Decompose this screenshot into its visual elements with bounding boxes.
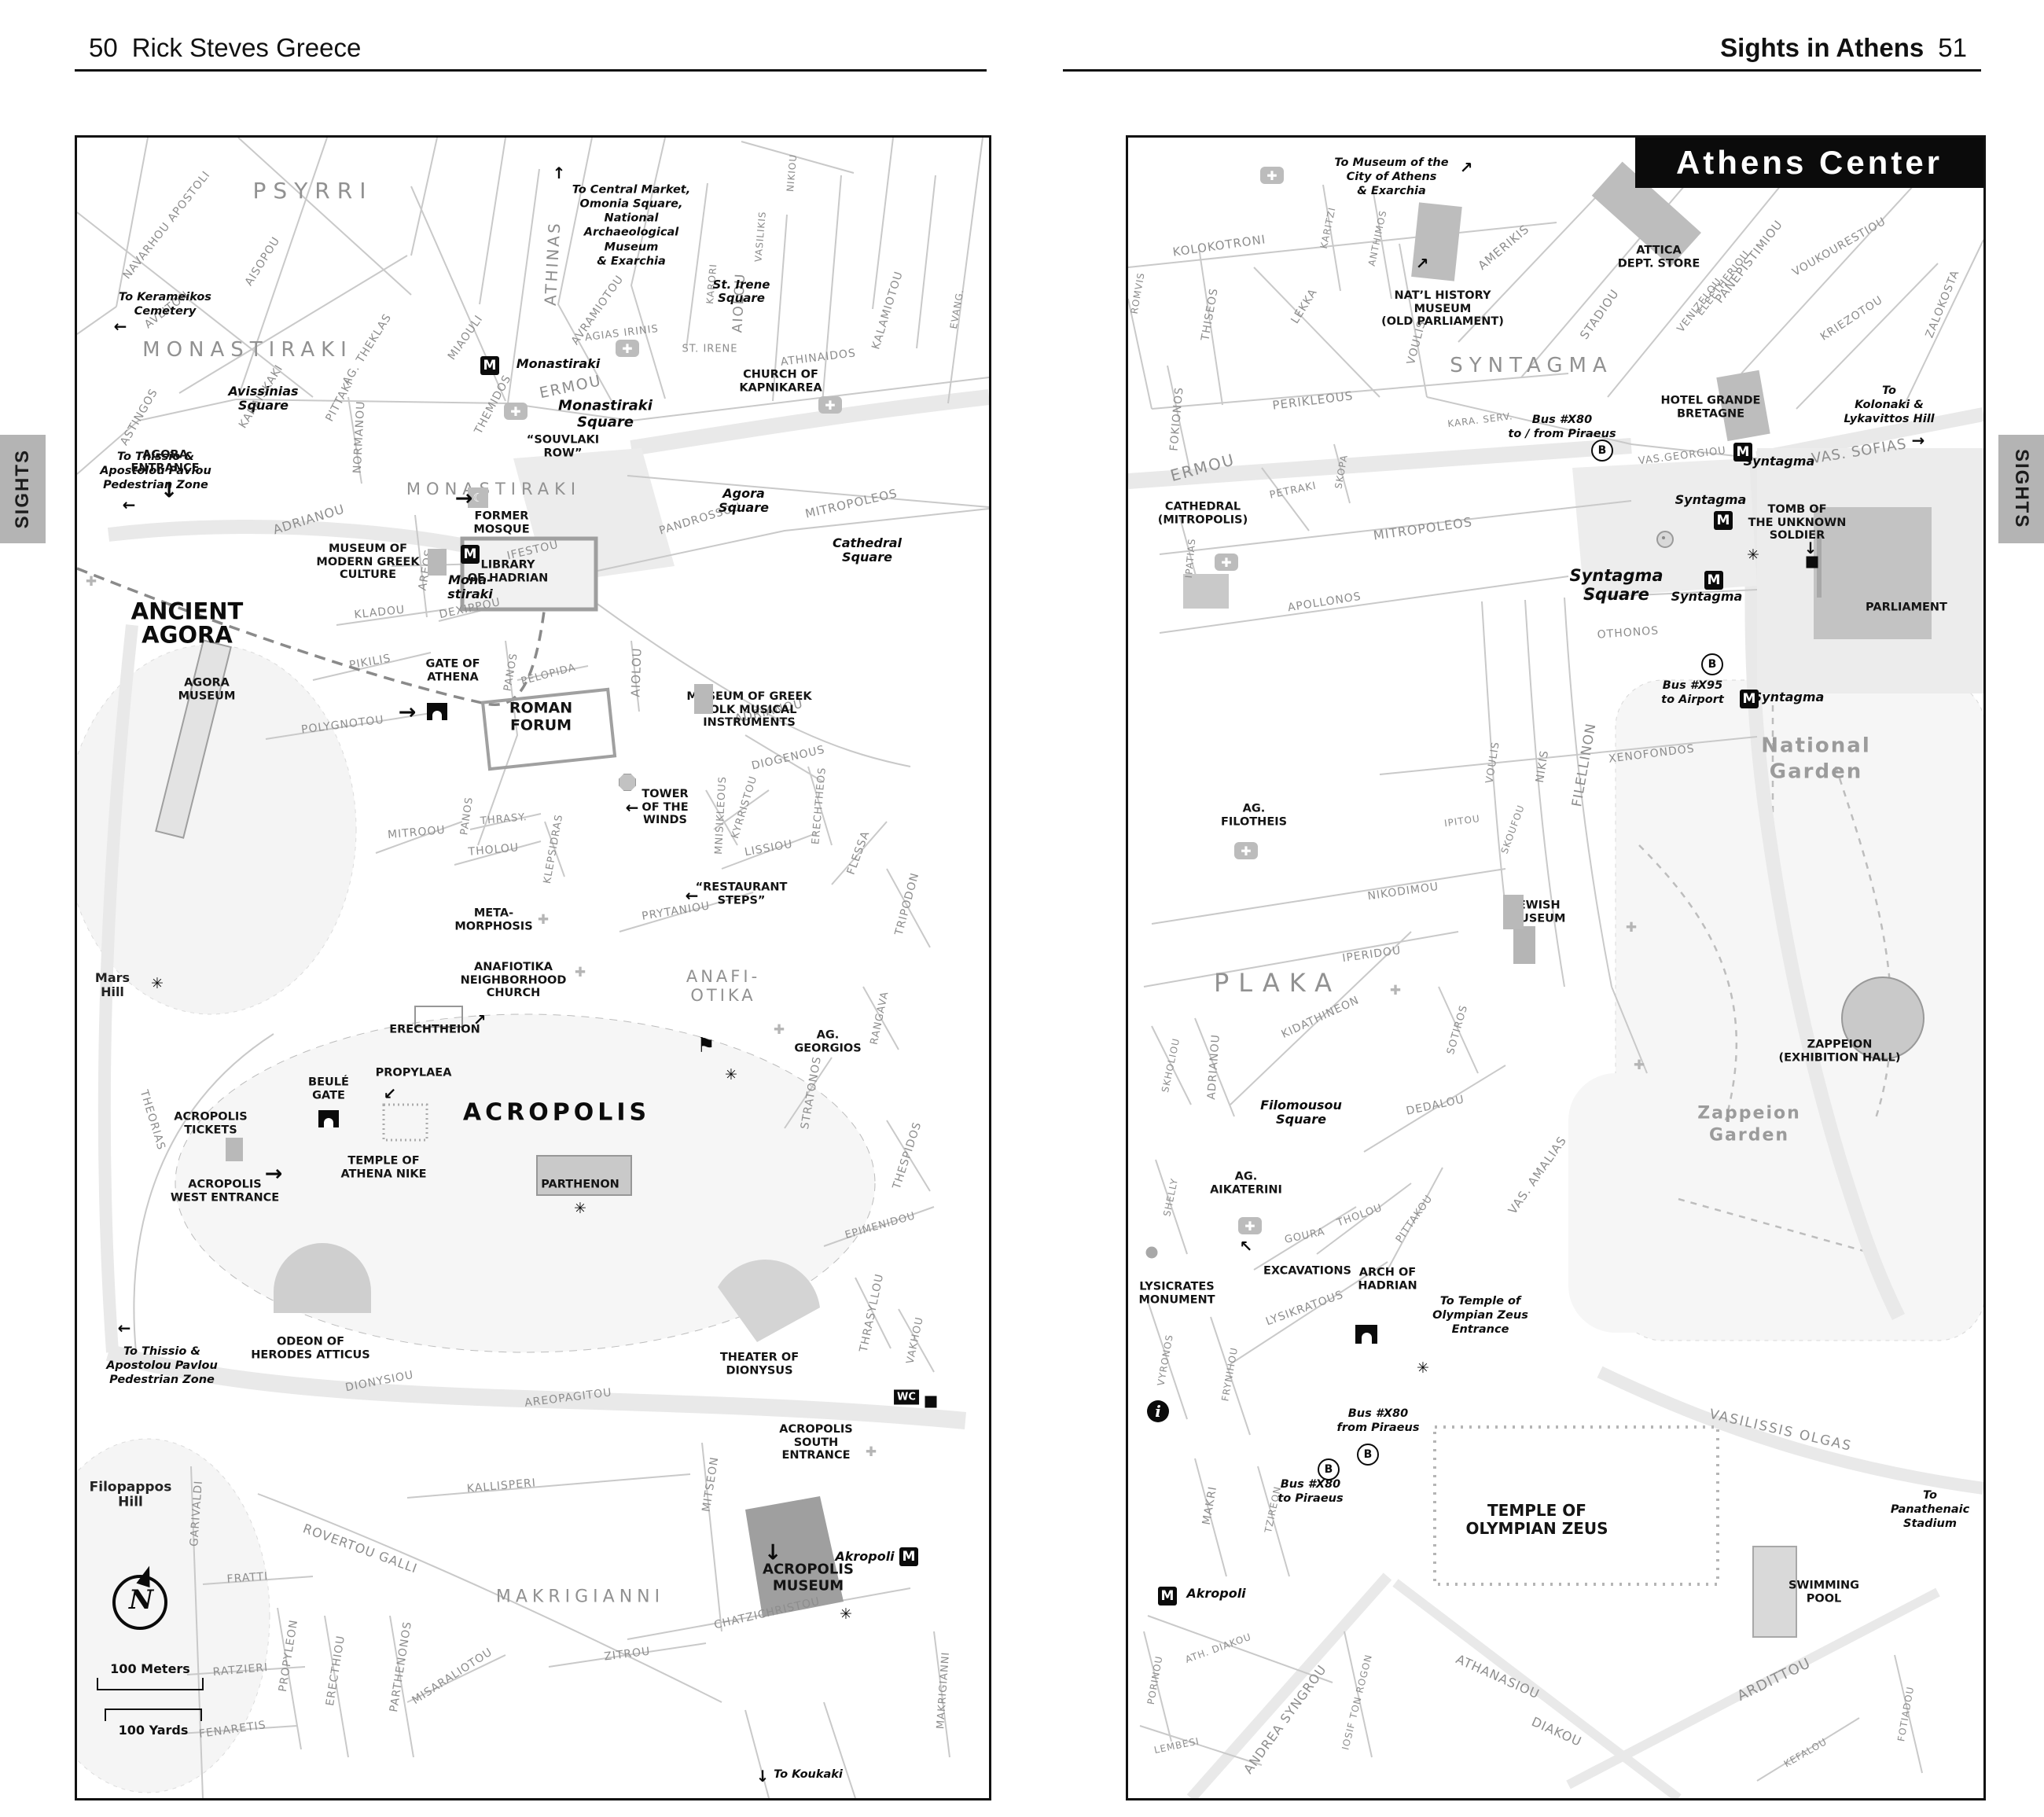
map-label: ODEON OF HERODES ATTICUS	[251, 1335, 369, 1361]
bus-icon	[1357, 1444, 1379, 1466]
athens-acropolis-map: N 100 Meters 100 Yards PSYRRIMONASTIRAKI…	[75, 135, 991, 1800]
arch-icon	[1355, 1325, 1377, 1344]
map-label: ACROPOLIS MUSEUM	[763, 1561, 854, 1594]
map-label: TEMPLE OF OLYMPIAN ZEUS	[1465, 1502, 1608, 1538]
map-label: THEATER OF DIONYSUS	[720, 1351, 799, 1377]
arrow-icon: ↓	[160, 479, 178, 503]
bus-icon	[1591, 440, 1613, 462]
bld-icon	[1503, 895, 1524, 929]
church-icon	[1260, 167, 1284, 184]
map-label: To Koukaki	[774, 1767, 843, 1782]
district-label: MONASTIRAKI	[142, 339, 353, 362]
map-label: St. Irene Square	[713, 278, 770, 305]
bld-icon	[226, 1138, 243, 1161]
map-label: Cathedral Square	[833, 536, 902, 565]
map-label: Syntagma	[1671, 590, 1743, 604]
map-label: Bus #X80 to Piraeus	[1277, 1477, 1343, 1506]
bus-icon	[1318, 1458, 1340, 1480]
tomb-icon	[925, 1396, 937, 1408]
map-label: Monastiraki	[517, 357, 601, 371]
map-label: “RESTAURANT STEPS”	[696, 881, 788, 907]
map-label: HOTEL GRANDE BRETAGNE	[1661, 394, 1761, 420]
view-icon	[840, 1606, 852, 1623]
left-page-title: Rick Steves Greece	[132, 33, 362, 62]
gate-icon	[427, 703, 447, 720]
church-icon	[616, 340, 639, 357]
map-label: Syntagma	[1753, 690, 1825, 704]
map-label: “SOUVLAKI ROW”	[527, 433, 599, 459]
church-icon	[818, 396, 842, 414]
map-label: ACROPOLIS	[463, 1100, 650, 1125]
view-icon	[725, 1066, 737, 1083]
map-label: Syntagma	[1744, 454, 1815, 469]
cross-icon	[774, 1022, 785, 1038]
arrow-icon: ↖	[1240, 1237, 1253, 1256]
compass-icon: N	[112, 1575, 167, 1630]
map-label: To Thissio & Apostolou Pavlou Pedestrian…	[106, 1344, 218, 1387]
fountain-icon	[1656, 531, 1674, 548]
arrow-icon: →	[265, 1162, 283, 1186]
bus-icon	[1701, 653, 1723, 675]
map-label: Syntagma	[1675, 493, 1747, 507]
tomb-icon	[1807, 557, 1818, 568]
right-page-header: Sights in Athens51	[1720, 33, 1981, 63]
bld-icon	[694, 684, 713, 714]
athens-center-map: Athens Center SYNTAGMAPLAKANational Gard…	[1126, 135, 1986, 1800]
map-label: PARTHENON	[541, 1179, 619, 1192]
church-icon	[1238, 1217, 1262, 1234]
arrow-icon: ←	[626, 798, 639, 817]
map-label: Avissinias Square	[228, 384, 298, 413]
map-label: Agora Square	[719, 487, 769, 515]
metro-icon	[1714, 511, 1733, 530]
view-icon	[1747, 546, 1759, 564]
map-label: ACROPOLIS SOUTH ENTRANCE	[779, 1423, 852, 1462]
map-title: Athens Center	[1635, 138, 1983, 188]
map-label: AG. GEORGIOS	[794, 1028, 861, 1054]
right-page-number: 51	[1938, 33, 1967, 62]
left-page-header: 50Rick Steves Greece	[75, 33, 361, 63]
view-icon	[151, 975, 164, 992]
right-header-rule	[1063, 69, 1981, 72]
map-label: Filomousou Square	[1260, 1098, 1342, 1127]
map-label: Bus #X95 to Airport	[1661, 679, 1724, 707]
map-label: Bus #X80 to / from Piraeus	[1508, 413, 1616, 441]
metro-icon	[1704, 571, 1723, 590]
metro-icon	[899, 1547, 918, 1566]
map-label: CATHEDRAL (MITROPOLIS)	[1158, 500, 1248, 526]
map-label: To Museum of the City of Athens & Exarch…	[1334, 156, 1448, 198]
bld-icon	[428, 549, 447, 576]
map-label: Bus #X80 from Piraeus	[1337, 1407, 1420, 1435]
cross-icon	[86, 574, 97, 590]
arrow-icon: →	[1912, 431, 1925, 450]
sights-tab-left: SIGHTS	[0, 435, 46, 543]
map-label: LYSICRATES MONUMENT	[1138, 1280, 1215, 1306]
map-label: EXCAVATIONS	[1263, 1265, 1351, 1278]
district-label: SYNTAGMA	[1450, 355, 1612, 378]
arrow-icon: ↗	[1416, 254, 1429, 273]
arrow-icon: ↓	[1804, 539, 1818, 557]
map-label: SWIMMING POOL	[1788, 1579, 1859, 1605]
metro-icon	[480, 356, 499, 375]
map-label: META- MORPHOSIS	[454, 907, 532, 932]
arrow-icon: ↙	[384, 1084, 397, 1103]
map-label: To Central Market, Omonia Square, Nation…	[572, 183, 690, 269]
street-label: AIOLOU	[629, 647, 644, 697]
sights-tab-right: SIGHTS	[1998, 435, 2044, 543]
church-icon	[1215, 554, 1238, 571]
map-label: AGORA MUSEUM	[178, 676, 236, 702]
map-label: NAT’L HISTORY MUSEUM (OLD PARLIAMENT)	[1381, 289, 1504, 329]
map-label: Akropoli	[1186, 1587, 1245, 1601]
map-label: GATE OF ATHENA	[425, 657, 480, 683]
map-label: ATTICA DEPT. STORE	[1618, 244, 1700, 270]
arrow-icon: ←	[118, 1319, 131, 1337]
cross-icon	[1390, 983, 1401, 999]
monument-icon	[1146, 1247, 1158, 1259]
view-icon	[574, 1200, 586, 1217]
scale-yards: 100 Yards	[105, 1708, 202, 1738]
district-label: PLAKA	[1214, 969, 1341, 997]
map-label: ARCH OF HADRIAN	[1358, 1266, 1417, 1292]
cross-icon	[538, 912, 549, 928]
map-label: ACROPOLIS TICKETS	[174, 1110, 247, 1136]
map-label: AGORA ENTRANCE	[131, 448, 200, 474]
map-label: To Panathenaic Stadium	[1891, 1488, 1969, 1531]
metro-icon	[1158, 1587, 1177, 1606]
map-label: National Garden	[1761, 734, 1870, 785]
right-page-title: Sights in Athens	[1720, 33, 1924, 62]
map-label: ROMAN FORUM	[509, 700, 572, 734]
left-header-rule	[75, 69, 987, 72]
map-label: Filopappos Hill	[90, 1480, 172, 1511]
map-label: TOMB OF THE UNKNOWN SOLDIER	[1748, 503, 1847, 543]
arrow-icon: ←	[123, 495, 136, 514]
arrow-icon: ↑	[553, 164, 566, 182]
arrow-icon: ↗	[473, 1010, 487, 1029]
flag-icon	[697, 1034, 715, 1057]
arrow-icon: ←	[114, 317, 127, 336]
cross-icon	[575, 965, 586, 980]
scale-meters: 100 Meters	[97, 1661, 204, 1690]
left-page-number: 50	[89, 33, 118, 62]
arrow-icon: ↓	[764, 1541, 782, 1565]
map-label: PARLIAMENT	[1866, 601, 1947, 615]
map-label: Syntagma Square	[1569, 567, 1663, 605]
metro-icon	[1740, 690, 1759, 708]
arrow-icon: ↓	[756, 1767, 770, 1786]
map-label: Mars Hill	[95, 971, 130, 999]
info-icon	[1147, 1400, 1169, 1422]
map-label: To Kerameikos Cemetery	[119, 290, 211, 318]
map-label: Zappeion Garden	[1697, 1103, 1801, 1146]
map-label: TOWER OF THE WINDS	[642, 788, 688, 827]
cross-icon	[866, 1444, 877, 1460]
map-label: AG. AIKATERINI	[1210, 1170, 1282, 1196]
cross-icon	[1626, 920, 1637, 936]
map-label: PROPYLAEA	[376, 1067, 452, 1080]
metro-icon	[1733, 443, 1752, 462]
map-label: TEMPLE OF ATHENA NIKE	[340, 1154, 426, 1180]
arrow-icon: ↗	[1460, 158, 1473, 177]
map-label: ANAFIOTIKA NEIGHBORHOOD CHURCH	[461, 961, 567, 1000]
cross-icon	[1634, 1057, 1645, 1073]
map-label: ANCIENT AGORA	[131, 600, 244, 648]
map-label: FORMER MOSQUE	[473, 509, 529, 535]
map-label: AG. FILOTHEIS	[1221, 802, 1287, 828]
district-label: ANAFI- OTIKA	[686, 968, 760, 1006]
street-label: ST. IRENE	[682, 344, 738, 356]
map-label: MUSEUM OF MODERN GREEK CULTURE	[316, 543, 419, 582]
view-icon	[1417, 1359, 1429, 1377]
arrow-icon: →	[399, 701, 417, 725]
map-label: To Kolonaki & Lykavittos Hill	[1844, 384, 1934, 426]
gate-icon	[318, 1110, 339, 1127]
map-label: ZAPPEION (EXHIBITION HALL)	[1779, 1038, 1901, 1064]
metro-icon	[461, 545, 480, 564]
map-label: ERECHTHEION	[389, 1024, 480, 1037]
map-label: CHURCH OF KAPNIKAREA	[739, 368, 822, 394]
map-label: ACROPOLIS WEST ENTRANCE	[171, 1178, 279, 1204]
map-label: BEULÉ GATE	[308, 1076, 349, 1102]
map-label: To Temple of Olympian Zeus Entrance	[1432, 1294, 1528, 1337]
district-label: MONASTIRAKI	[406, 480, 581, 499]
church-icon	[504, 403, 528, 420]
arrow-icon: ←	[686, 886, 699, 905]
arrow-icon: →	[455, 487, 473, 511]
district-label: MAKRIGIANNI	[496, 1587, 664, 1606]
district-label: PSYRRI	[253, 178, 373, 204]
map-label: Monastiraki Square	[558, 398, 653, 430]
wc-icon	[894, 1390, 919, 1405]
map-label: LIBRARY OF HADRIAN	[468, 558, 549, 584]
church-icon	[1234, 842, 1258, 859]
